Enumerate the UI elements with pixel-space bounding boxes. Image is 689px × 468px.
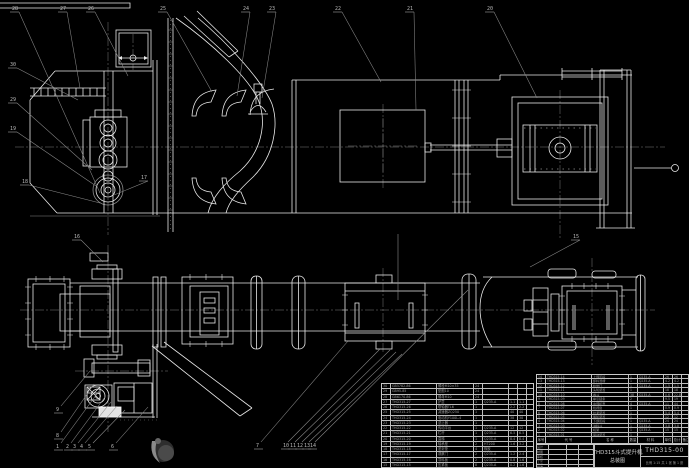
bom-cell <box>527 410 535 414</box>
bom-cell: 2.2 <box>509 405 518 409</box>
leader-line <box>17 132 96 186</box>
plan-head <box>25 253 166 359</box>
bom-cell: THD315-05 <box>546 415 592 418</box>
bom-cell: 25 <box>382 410 391 414</box>
bom-cell: 1 <box>629 411 638 414</box>
bom-cell: 40 <box>518 410 527 414</box>
bom-cell <box>682 379 689 382</box>
signature-blank <box>549 455 567 459</box>
balloon-number: 23 <box>269 6 275 12</box>
bom-cell: 12 <box>664 415 673 418</box>
bom-cell: 40 <box>509 410 518 414</box>
bom-cell: 1.5 <box>673 384 682 387</box>
bom-cell: 1.6 <box>509 442 518 446</box>
bom-cell: 1 <box>629 379 638 382</box>
bom-cell <box>673 433 682 436</box>
bom-cell <box>509 447 518 451</box>
balloon-number: 8 <box>56 433 59 439</box>
bom-cell <box>483 416 509 420</box>
bom-cell: 4.2 <box>673 379 682 382</box>
bom-cell: THD315-03 <box>546 424 592 427</box>
bom-cell: 联轴器TL6 <box>437 405 474 409</box>
drawing-number-area: THD315-00 比例 1:15 共 1 张 第 1 张 <box>641 445 688 467</box>
bom-cell <box>682 397 689 400</box>
bom-cell: Q235-A <box>638 393 664 396</box>
balloon-number: 17 <box>141 175 147 181</box>
bom-cell: 8.4 <box>518 437 527 441</box>
bom-cell: 1.1 <box>509 400 518 404</box>
bom-table-left: 30GB5782-86螺栓M10×352429GB95-85垫圈102428GB… <box>381 383 534 468</box>
bom-cell <box>527 384 535 388</box>
bom-cell: 螺母M10 <box>437 395 474 399</box>
bom-cell: 拉紧装置 <box>592 411 629 414</box>
signature-blank <box>567 455 579 459</box>
bom-cell: 1 <box>474 431 483 435</box>
signature-blank <box>549 450 567 454</box>
bom-cell: 3.8 <box>664 424 673 427</box>
bom-cell <box>527 421 535 425</box>
bom-cell: 22.8 <box>673 393 682 396</box>
bom-cell: 1 <box>629 428 638 431</box>
bom-cell: 卸料溜槽 <box>592 379 629 382</box>
bom-cell: 1 <box>629 388 638 391</box>
bom-cell: 1 <box>629 384 638 387</box>
bom-cell: THD315-16 <box>391 458 437 462</box>
bom-cell <box>682 419 689 422</box>
bom-cell: 压紧板 <box>437 463 474 467</box>
bom-cell <box>518 384 527 388</box>
bom-cell: 0.6 <box>664 393 673 396</box>
scale-note: 比例 1:15 共 1 张 第 1 张 <box>641 457 688 467</box>
bom-cell: 0.9 <box>673 406 682 409</box>
bom-cell: THD315-08 <box>546 402 592 405</box>
discharge-chute <box>176 11 275 213</box>
bom-cell: 1 <box>474 421 483 425</box>
bom-cell: THD315-22 <box>391 426 437 430</box>
leader-line <box>530 240 580 267</box>
leader-line <box>414 12 416 110</box>
bom-cell: 15 <box>382 463 391 467</box>
bom-cell: 3.2 <box>518 442 527 446</box>
bom-cell: 1 <box>629 375 638 378</box>
bom-cell: 38 <box>629 393 638 396</box>
balloon-number: 7 <box>256 443 259 449</box>
bom-cell: 3.8 <box>673 424 682 427</box>
bom-cell <box>682 393 689 396</box>
bom-cell: 27 <box>382 400 391 404</box>
leader-line <box>67 12 80 88</box>
bom-cell: 20 <box>382 437 391 441</box>
bom-cell: HT200 <box>483 442 509 446</box>
bom-cell: GB5782-86 <box>391 384 437 388</box>
bom-cell <box>527 395 535 399</box>
balloon-number: 29 <box>10 97 16 103</box>
signature-blank <box>579 460 594 464</box>
bom-cell: 12 <box>673 415 682 418</box>
bom-cell <box>682 388 689 391</box>
bom-cell: 5.4 <box>664 411 673 414</box>
bom-cell: 38 <box>509 416 518 420</box>
bom-cell: 8 <box>474 463 483 467</box>
bom-cell: 14 <box>537 375 546 378</box>
bom-cell: 2 <box>474 458 483 462</box>
balloon-number: 22 <box>335 6 341 12</box>
bom-cell: THD315-02 <box>546 428 592 431</box>
bom-cell: 44 <box>673 402 682 405</box>
bom-cell: 1.2 <box>509 452 518 456</box>
balloon-number: 27 <box>60 6 66 12</box>
bom-cell: 减速器ZQ250 <box>437 410 474 414</box>
bom-cell: THD315-13 <box>546 379 592 382</box>
bom-cell: 上部区段 <box>592 375 629 378</box>
bom-cell: 16 <box>382 458 391 462</box>
bom-cell: 轴承座 <box>437 442 474 446</box>
drawing-number: THD315-00 <box>641 445 688 457</box>
balloon-number: 3 <box>73 444 76 450</box>
watermark-logo <box>151 438 174 463</box>
bom-cell: 牵引链条 <box>592 397 629 400</box>
bom-cell: Q235-A <box>483 426 509 430</box>
bom-cell: 材 料 <box>638 437 664 443</box>
leader-line <box>95 12 128 76</box>
bom-cell <box>638 433 664 436</box>
bom-cell: 10 <box>537 393 546 396</box>
balloon-number: 14 <box>310 443 316 449</box>
bom-cell: THD315-24 <box>391 416 437 420</box>
bom-cell: Q235-A <box>483 437 509 441</box>
leader-line <box>494 12 537 98</box>
centerlines <box>15 22 665 432</box>
bom-cell: 8.4 <box>509 437 518 441</box>
bom-cell: 26 <box>673 375 682 378</box>
bom-cell <box>483 389 509 393</box>
bom-cell: Q235-A <box>483 452 509 456</box>
signature-blank <box>567 460 579 464</box>
bom-cell: 1 <box>629 433 638 436</box>
bom-cell: THD315-07 <box>546 406 592 409</box>
bom-cell: Q235-A <box>638 419 664 422</box>
bom-cell: THD315-12 <box>546 384 592 387</box>
bom-cell: 头轮装置 <box>592 388 629 391</box>
balloon-number: 4 <box>80 444 83 450</box>
balloon-number: 1 <box>56 444 59 450</box>
bom-cell <box>483 421 509 425</box>
bom-cell: 1 <box>629 424 638 427</box>
bom-cell: 18 <box>664 388 673 391</box>
balloon-number: 25 <box>160 6 166 12</box>
bom-cell: 26 <box>664 375 673 378</box>
bom-cell: 0.2 <box>509 463 518 467</box>
bom-cell <box>483 410 509 414</box>
bom-cell <box>682 433 689 436</box>
buckets <box>192 89 274 204</box>
balloon-number: 10 <box>283 443 289 449</box>
bom-cell: Q235-A <box>483 400 509 404</box>
bom-row: 15THD315-15压紧板8Q235-A0.21.6 <box>382 463 533 468</box>
bom-cell: 2 <box>474 442 483 446</box>
plan-tube <box>70 277 638 347</box>
signature-blank <box>567 450 579 454</box>
bom-cell: THD315-25 <box>391 410 437 414</box>
leader-line <box>288 349 380 442</box>
balloon-number: 9 <box>56 407 59 413</box>
balloon-number: 11 <box>290 443 296 449</box>
bom-cell: 1 <box>474 416 483 420</box>
bom-cell: 7 <box>537 406 546 409</box>
bom-cell: Q235-A <box>638 379 664 382</box>
leader-line <box>295 350 390 442</box>
bom-cell: THD315-21 <box>391 431 437 435</box>
bom-cell <box>527 458 535 462</box>
bom-cell: 密封垫 <box>437 447 474 451</box>
bom-cell: 2 <box>474 452 483 456</box>
bom-cell: 橡胶 <box>483 447 509 451</box>
head-casing <box>30 71 160 216</box>
bom-cell: 数量 <box>629 437 638 443</box>
bom-cell <box>518 395 527 399</box>
bom-cell <box>682 384 689 387</box>
leader-line <box>81 240 103 262</box>
bom-cell <box>527 426 535 430</box>
bom-cell: THD315-01 <box>546 433 592 436</box>
title-area: THD315斗式提升机 总装图 <box>595 445 641 467</box>
bom-cell <box>664 433 673 436</box>
bom-cell: 24 <box>474 395 483 399</box>
bom-cell: 24 <box>664 419 673 422</box>
balloon-number: 15 <box>573 234 579 240</box>
balloon-number: 18 <box>22 179 28 185</box>
bom-cell: THD315-06 <box>546 411 592 414</box>
bom-cell <box>638 388 664 391</box>
bom-cell: 4 <box>474 447 483 451</box>
balloon-number: 26 <box>88 6 94 12</box>
drawing-title: 总装图 <box>610 457 625 464</box>
balloon-number: 19 <box>10 126 16 132</box>
bom-cell: 12 <box>509 426 518 430</box>
bom-cell <box>682 406 689 409</box>
title-block: 设计制图审核工艺批准 THD315斗式提升机 总装图 THD315-00 比例 … <box>536 444 689 468</box>
bom-cell: 4 <box>537 419 546 422</box>
bom-cell: 总计 <box>673 437 682 443</box>
bom-cell: 5 <box>537 415 546 418</box>
bom-cell: 1 <box>474 405 483 409</box>
bom-cell: Q235-A <box>483 458 509 462</box>
signature-label: 制图 <box>537 450 549 454</box>
bom-cell: 驱动装置 <box>592 433 629 436</box>
bom-cell: 21 <box>382 431 391 435</box>
bom-cell <box>682 424 689 427</box>
bom-cell: THD315-04 <box>546 419 592 422</box>
leader-line <box>262 12 276 98</box>
bom-cell: 9.5 <box>664 397 673 400</box>
bom-cell: THD315-26 <box>391 405 437 409</box>
bom-cell <box>638 406 664 409</box>
balloon-number: 20 <box>487 6 493 12</box>
bom-cell: THD315-27 <box>391 400 437 404</box>
bom-cell <box>509 389 518 393</box>
plan-drive-unit <box>84 342 252 420</box>
bom-cell <box>483 405 509 409</box>
bom-cell: 12 <box>537 384 546 387</box>
bom-cell <box>527 463 535 467</box>
bom-cell <box>518 421 527 425</box>
signature-label: 审核 <box>537 455 549 459</box>
bom-cell: 23 <box>382 421 391 425</box>
bom-cell: Q235-A <box>638 424 664 427</box>
balloon-number: 16 <box>74 234 80 240</box>
bom-cell: 2.2 <box>518 405 527 409</box>
signature-blank <box>549 445 567 449</box>
bom-cell: 单件 <box>664 437 673 443</box>
front-view <box>30 11 679 232</box>
bom-cell: 1.5 <box>664 384 673 387</box>
casing-column <box>153 18 173 232</box>
bom-cell: 垫圈10 <box>437 389 474 393</box>
tail-section <box>425 68 679 228</box>
balloon-number: 30 <box>10 62 16 68</box>
bom-cell: 导料板 <box>437 458 474 462</box>
bom-cell <box>483 384 509 388</box>
bom-cell <box>509 384 518 388</box>
bom-cell: 畚斗 <box>592 393 629 396</box>
bom-cell: 15 <box>673 428 682 431</box>
bom-cell <box>527 437 535 441</box>
bom-cell: 1.1 <box>518 400 527 404</box>
bom-cell: 1 <box>474 400 483 404</box>
balloon-number: 5 <box>88 444 91 450</box>
bom-cell <box>527 431 535 435</box>
bom-cell: 4.2 <box>664 379 673 382</box>
bom-cell: 检视窗 <box>592 406 629 409</box>
bom-cell: GB6170-86 <box>391 395 437 399</box>
bom-cell: 进料斗 <box>592 424 629 427</box>
bom-cell: 机架 <box>592 428 629 431</box>
bom-cell <box>682 375 689 378</box>
bom-cell <box>527 442 535 446</box>
leader-line <box>342 12 381 82</box>
leader-line <box>17 103 92 170</box>
bom-cell: 备注 <box>682 437 689 443</box>
bom-cell: 护罩 <box>437 400 474 404</box>
bom-cell: 6 <box>537 411 546 414</box>
bom-cell: 9 <box>537 397 546 400</box>
leader-line <box>261 341 348 442</box>
bom-cell <box>509 395 518 399</box>
bom-cell: 名 称 <box>592 437 629 443</box>
bom-cell: 检修门 <box>592 384 629 387</box>
signature-label: 工艺 <box>537 460 549 464</box>
bom-cell: 2 <box>537 428 546 431</box>
bom-cell: 1 <box>629 406 638 409</box>
balloon-number: 12 <box>297 443 303 449</box>
bom-cell: 2 <box>629 397 638 400</box>
bom-cell: THD315-11 <box>546 388 592 391</box>
bom-cell <box>682 415 689 418</box>
bom-cell: 2.4 <box>518 452 527 456</box>
bom-cell: 1.6 <box>518 463 527 467</box>
bom-cell: 18 <box>382 447 391 451</box>
bom-cell: Q235-A <box>638 375 664 378</box>
bom-cell: 1.6 <box>518 458 527 462</box>
bom-cell: 18 <box>673 388 682 391</box>
bom-cell: 观察门 <box>437 452 474 456</box>
bom-cell: 19 <box>673 397 682 400</box>
leader-line <box>17 68 78 100</box>
bom-cell: THD315-15 <box>391 463 437 467</box>
bom-cell: 5.4 <box>673 411 682 414</box>
bom-cell: 1 <box>629 419 638 422</box>
bom-cell: 6.5 <box>509 431 518 435</box>
bom-cell: 13 <box>537 379 546 382</box>
balloon-number: 6 <box>111 444 114 450</box>
bom-cell: 28 <box>382 395 391 399</box>
bom-cell: 序号 <box>537 437 546 443</box>
bom-cell: THD315-20 <box>391 437 437 441</box>
bom-table-right: 14THD315-14上部区段1Q235-A262613THD315-13卸料溜… <box>536 374 689 444</box>
bom-cell: THD315-19 <box>391 442 437 446</box>
bom-cell: 0.8 <box>509 458 518 462</box>
plan-center-panel <box>342 275 428 349</box>
bom-cell: 电动机Y100L-4 <box>437 416 474 420</box>
bom-cell: 3 <box>537 424 546 427</box>
balloon-number: 21 <box>407 6 413 12</box>
leader-line <box>19 12 100 193</box>
bom-cell: Q235-A <box>638 402 664 405</box>
bom-cell <box>638 397 664 400</box>
leader-line <box>61 371 90 406</box>
bom-cell <box>682 428 689 431</box>
bom-cell: Q235-A <box>638 384 664 387</box>
bom-cell <box>483 395 509 399</box>
balloon-number: 28 <box>12 6 18 12</box>
bom-cell: 26 <box>382 405 391 409</box>
bom-cell <box>527 452 535 456</box>
bom-cell <box>682 411 689 414</box>
bom-cell: 0.9 <box>664 406 673 409</box>
bom-cell: 1 <box>629 415 638 418</box>
bom-cell: 6.5 <box>518 431 527 435</box>
bom-cell: Q235-A <box>483 463 509 467</box>
bom-cell: 12 <box>518 426 527 430</box>
bom-cell <box>527 405 535 409</box>
plan-flange-rings <box>251 274 476 349</box>
bom-cell <box>527 416 535 420</box>
bom-cell: GB95-85 <box>391 389 437 393</box>
signature-label: 设计 <box>537 445 549 449</box>
bom-cell: 8 <box>537 402 546 405</box>
plan-inlet-section <box>182 274 233 347</box>
signature-grid: 设计制图审核工艺批准 <box>537 445 595 467</box>
bom-cell: Q235-A <box>483 431 509 435</box>
bom-cell: 代 号 <box>546 437 592 443</box>
bom-cell: 尾轮装置 <box>592 415 629 418</box>
signature-blank <box>567 445 579 449</box>
balloon-number: 2 <box>66 444 69 450</box>
bom-cell <box>509 421 518 425</box>
bom-cell: 传动平台 <box>437 426 474 430</box>
bom-cell: 栏杆 <box>437 431 474 435</box>
bom-cell: 1 <box>474 426 483 430</box>
bom-cell: THD315-18 <box>391 447 437 451</box>
bom-cell: 11 <box>664 402 673 405</box>
bom-cell: 29 <box>382 389 391 393</box>
bom-cell <box>638 415 664 418</box>
bom-cell <box>518 389 527 393</box>
bom-cell: 4 <box>629 402 638 405</box>
bom-cell: 1 <box>474 410 483 414</box>
balloon-number: 24 <box>243 6 249 12</box>
bom-cell: 1 <box>474 437 483 441</box>
